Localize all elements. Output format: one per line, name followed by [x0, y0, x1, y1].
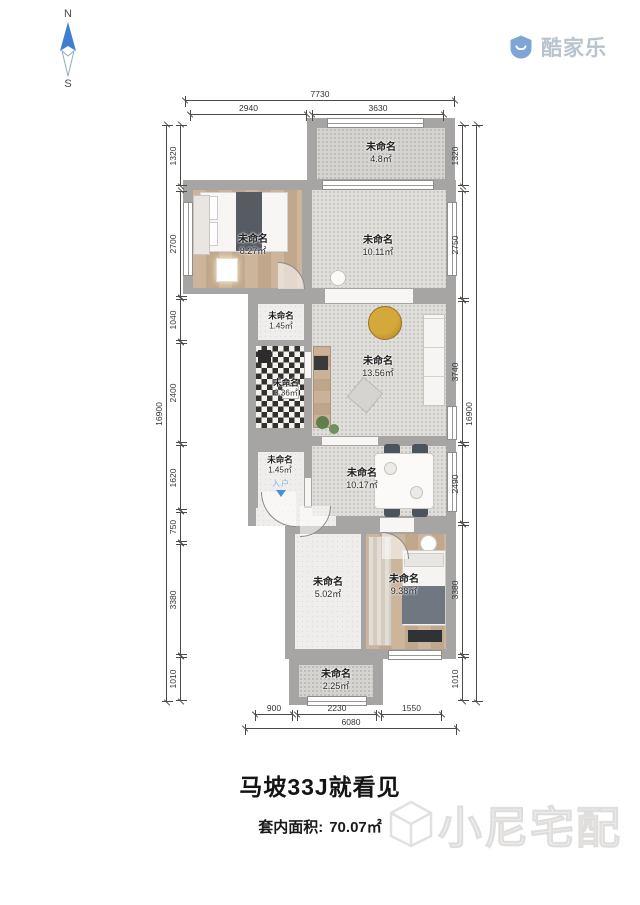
window: [388, 650, 442, 660]
room-label: 未命名 1.45㎡: [268, 312, 294, 331]
entry-marker: 入户: [272, 478, 290, 497]
room-label: 未命名 10.11㎡: [363, 235, 394, 257]
wardrobe: [193, 195, 210, 255]
compass: N S: [48, 8, 88, 98]
room-area: 3.36㎡: [274, 388, 298, 397]
floorplan-canvas: N S 酷家乐: [0, 0, 640, 905]
room-name: 未命名: [267, 456, 293, 466]
appliance: [314, 356, 328, 370]
compass-arrow-icon: [55, 20, 81, 78]
room-area: 1.45㎡: [269, 321, 293, 330]
window: [322, 180, 434, 190]
door-opening: [305, 352, 311, 378]
room-name: 未命名: [366, 142, 396, 154]
dim-left-overall: 16900: [166, 125, 167, 702]
room-area: 2.25㎡: [323, 681, 350, 691]
room-label: 未命名 1.45㎡: [267, 456, 293, 475]
dim-bottom-overall: 6080: [245, 728, 457, 729]
compass-north-label: N: [48, 8, 88, 20]
area-value: 70.07㎡: [329, 819, 382, 836]
dim-left-seg: 1620: [180, 445, 181, 510]
dim-right-seg: 1010: [462, 657, 463, 701]
plant: [329, 424, 339, 434]
dim-right-seg: 1320: [462, 125, 463, 186]
dim-bottom-seg: 1550: [381, 714, 442, 715]
dim-right-overall: 16900: [476, 125, 477, 702]
dim-right-seg: 2750: [462, 191, 463, 299]
door-opening: [322, 437, 378, 445]
dim-left-seg: 2400: [180, 343, 181, 443]
room-label: 未命名 10.17㎡: [346, 468, 378, 490]
dim-right-seg: 3740: [462, 301, 463, 443]
brand-name: 酷家乐: [541, 32, 607, 62]
room-label: 未命名 3.36㎡: [273, 379, 299, 398]
room-area: 5.02㎡: [315, 589, 342, 599]
dim-right-seg: 2490: [462, 445, 463, 523]
window: [183, 202, 193, 276]
dresser: [408, 630, 442, 642]
room-name: 未命名: [321, 669, 351, 681]
room-area: 1.45㎡: [268, 465, 292, 474]
compass-south-label: S: [48, 78, 88, 90]
washer: [258, 350, 271, 363]
window: [327, 118, 424, 128]
room-label: 未命名 13.56㎡: [362, 356, 394, 378]
area-label: 套内面积:: [258, 819, 323, 836]
dining-table: [374, 453, 434, 509]
pillow: [404, 553, 444, 567]
dim-top-seg: 3630: [312, 114, 444, 115]
room-area: 9.38㎡: [391, 586, 418, 596]
plate: [384, 462, 397, 475]
dim-left-seg: 3380: [180, 544, 181, 655]
plate: [410, 486, 423, 499]
room-name: 未命名: [363, 356, 393, 368]
dim-left-seg: 750: [180, 512, 181, 542]
sofa: [423, 314, 445, 406]
door-opening: [380, 518, 414, 532]
brand-logo: 酷家乐: [508, 32, 607, 62]
nightstand: [216, 258, 238, 282]
plant: [316, 416, 329, 429]
room-area: 10.17㎡: [346, 480, 378, 490]
dim-left-seg: 1010: [180, 657, 181, 701]
plan-area-line: 套内面积:70.07㎡: [0, 816, 640, 837]
room-label: 未命名 5.02㎡: [313, 577, 343, 599]
dim-left-seg: 1040: [180, 299, 181, 341]
room-name: 未命名: [268, 312, 294, 322]
room-name: 未命名: [313, 577, 343, 589]
entry-label: 入户: [272, 478, 290, 489]
room-name: 未命名: [389, 574, 419, 586]
room-name: 未命名: [347, 468, 377, 480]
stool: [330, 270, 346, 286]
room-area: 10.11㎡: [363, 247, 394, 257]
door-opening: [305, 478, 311, 506]
room-name: 未命名: [363, 235, 393, 247]
dim-right-seg: 3380: [462, 525, 463, 655]
dim-bottom-seg: 900: [255, 714, 293, 715]
dim-left-seg: 2700: [180, 191, 181, 297]
dim-bottom-seg: 2230: [297, 714, 377, 715]
room-label: 未命名 4.8㎡: [366, 142, 396, 164]
room-area: 4.8㎡: [370, 154, 392, 164]
room-name: 未命名: [273, 379, 299, 389]
plan-title: 马坡33J就看见: [0, 768, 640, 802]
door-opening: [325, 289, 413, 303]
entry-arrow-icon: [276, 490, 286, 497]
room-label: 未命名 8.27㎡: [238, 234, 268, 256]
round-table: [368, 306, 402, 340]
dim-top-overall: 7730: [185, 100, 455, 101]
room-label: 未命名 9.38㎡: [389, 574, 419, 596]
room-area: 13.56㎡: [362, 368, 394, 378]
kujiale-icon: [508, 34, 534, 60]
room-name: 未命名: [238, 234, 268, 246]
dim-top-seg: 2940: [190, 114, 307, 115]
window: [447, 406, 457, 440]
dim-left-seg: 1320: [180, 125, 181, 186]
room-label: 未命名 2.25㎡: [321, 669, 351, 691]
room-area: 8.27㎡: [240, 246, 267, 256]
